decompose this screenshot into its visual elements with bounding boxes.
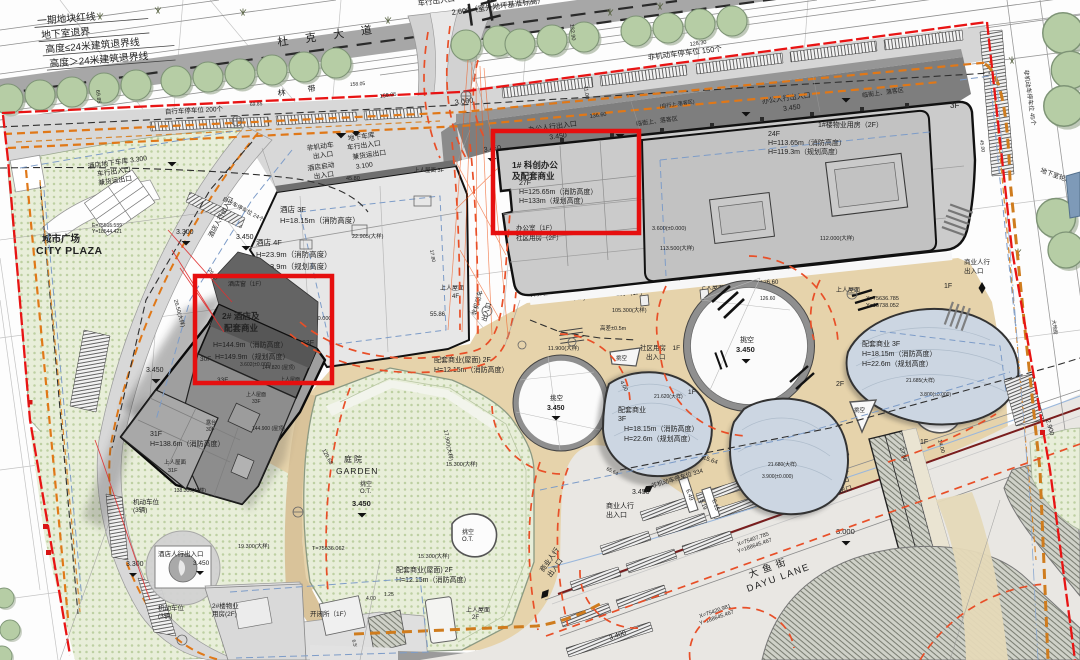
svg-text:酒店 4F: 酒店 4F	[256, 237, 282, 247]
svg-text:GARDEN: GARDEN	[336, 466, 378, 476]
svg-text:3.600(±0.000): 3.600(±0.000)	[652, 226, 686, 232]
svg-text:144.820 (屋顶): 144.820 (屋顶)	[262, 365, 295, 371]
svg-text:1F: 1F	[920, 439, 928, 446]
svg-text:4.00: 4.00	[366, 596, 376, 602]
svg-text:45.80: 45.80	[346, 176, 360, 182]
svg-text:H=18.15m（消防高度）: H=18.15m（消防高度）	[280, 215, 360, 225]
svg-text:30F: 30F	[200, 356, 211, 363]
svg-text:挑空: 挑空	[462, 528, 474, 536]
svg-text:酒店 3F: 酒店 3F	[280, 204, 306, 214]
svg-text:上人屋面: 上人屋面	[836, 286, 860, 294]
svg-text:H=119.3m（规划高度）: H=119.3m（规划高度）	[768, 147, 842, 156]
svg-text:2#楼物业: 2#楼物业	[212, 601, 239, 610]
svg-text:3.450: 3.450	[236, 234, 254, 241]
svg-text:(3辆): (3辆)	[158, 611, 172, 620]
svg-text:挑空: 挑空	[550, 393, 564, 402]
svg-text:O.T.: O.T.	[462, 537, 473, 543]
svg-text:31F: 31F	[150, 431, 162, 438]
svg-text:配套商业: 配套商业	[224, 323, 259, 333]
svg-text:1# 科创办公: 1# 科创办公	[512, 160, 558, 170]
svg-text:27F: 27F	[519, 180, 531, 187]
svg-text:H=144.9m（消防高度）: H=144.9m（消防高度）	[213, 340, 288, 349]
svg-text:Y=18544.421: Y=18544.421	[92, 229, 122, 235]
svg-text:3.450: 3.450	[736, 345, 755, 354]
svg-text:H=22.6m（规划高度）: H=22.6m（规划高度）	[624, 434, 695, 443]
svg-text:配套商业: 配套商业	[618, 405, 646, 414]
svg-text:H=23.9m（消防高度）: H=23.9m（消防高度）	[256, 249, 332, 259]
svg-text:上人屋面: 上人屋面	[164, 458, 187, 466]
svg-text:出入口: 出入口	[964, 266, 984, 275]
svg-text:1#楼物业用房（2F）: 1#楼物业用房（2F）	[818, 120, 883, 129]
svg-text:配套商业 3F: 配套商业 3F	[862, 339, 900, 348]
svg-text:3F: 3F	[618, 416, 626, 423]
svg-text:H=113.65m（消防高度）: H=113.65m（消防高度）	[768, 138, 846, 147]
svg-text:21.685(大样): 21.685(大样)	[906, 377, 935, 384]
svg-text:21.680(大样): 21.680(大样)	[768, 461, 797, 468]
svg-text:H=12.15m（消防高度）: H=12.15m（消防高度）	[396, 575, 471, 584]
svg-text:144.900 (屋顶): 144.900 (屋顶)	[252, 426, 285, 432]
svg-text:H=138.6m（消防高度）: H=138.6m（消防高度）	[150, 439, 225, 448]
svg-text:办公室（1F）: 办公室（1F）	[516, 223, 556, 232]
svg-text:用房(2F): 用房(2F)	[212, 609, 237, 618]
svg-text:3.450: 3.450	[547, 405, 565, 412]
svg-text:30F: 30F	[206, 427, 215, 433]
svg-text:H=18.15m（消防高度）: H=18.15m（消防高度）	[624, 424, 699, 433]
svg-text:69.85: 69.85	[250, 101, 263, 108]
svg-text:上人屋面: 上人屋面	[246, 391, 266, 398]
svg-text:19.300(大样): 19.300(大样)	[238, 542, 270, 550]
svg-text:商业人行: 商业人行	[606, 501, 634, 510]
svg-text:1F: 1F	[688, 389, 696, 396]
svg-text:15.300(大样): 15.300(大样)	[446, 460, 478, 468]
svg-text:2F: 2F	[836, 381, 844, 388]
svg-text:3.450: 3.450	[632, 489, 650, 496]
svg-text:2# 酒店及: 2# 酒店及	[222, 311, 260, 321]
svg-text:3.450: 3.450	[193, 560, 210, 567]
svg-text:138.300(43楼): 138.300(43楼)	[174, 487, 206, 494]
svg-text:机动车位: 机动车位	[158, 603, 185, 612]
svg-text:15.300(大样): 15.300(大样)	[418, 552, 450, 560]
svg-text:机动车位: 机动车位	[133, 497, 160, 506]
svg-text:挑空: 挑空	[854, 406, 866, 414]
svg-text:158.05: 158.05	[350, 81, 366, 88]
svg-text:55.86: 55.86	[430, 312, 446, 318]
svg-text:H=18.15m（消防高度）: H=18.15m（消防高度）	[862, 349, 937, 358]
svg-text:3F: 3F	[950, 101, 959, 110]
svg-text:11.900(大样): 11.900(大样)	[548, 344, 579, 352]
svg-text:高差±0.5m: 高差±0.5m	[600, 324, 627, 332]
svg-text:H=22.6m（规划高度）: H=22.6m（规划高度）	[862, 359, 933, 368]
svg-text:T=75636.062: T=75636.062	[312, 546, 345, 552]
svg-text:上人屋面 3F: 上人屋面 3F	[414, 166, 445, 174]
svg-text:H=125.65m（消防高度）: H=125.65m（消防高度）	[519, 187, 597, 196]
svg-text:126.60: 126.60	[760, 296, 776, 302]
svg-text:2F: 2F	[472, 615, 479, 621]
svg-text:3.900(±0.000): 3.900(±0.000)	[762, 474, 793, 480]
svg-text:庭院: 庭院	[344, 454, 364, 464]
svg-text:配套商业(屋面) 2F: 配套商业(屋面) 2F	[434, 355, 491, 364]
svg-text:31F: 31F	[168, 468, 178, 474]
svg-text:3.300: 3.300	[126, 561, 144, 568]
svg-text:105.300(大样): 105.300(大样)	[612, 306, 647, 314]
svg-text:配套商业(屋面) 2F: 配套商业(屋面) 2F	[396, 565, 453, 574]
svg-text:挑空: 挑空	[740, 335, 754, 344]
svg-text:(3辆): (3辆)	[133, 505, 147, 514]
svg-text:112.000(大样): 112.000(大样)	[820, 234, 854, 242]
svg-text:1F: 1F	[944, 283, 952, 290]
svg-text:挑空: 挑空	[360, 480, 372, 488]
svg-text:H=149.9m（规划高度）: H=149.9m（规划高度）	[215, 352, 290, 361]
svg-text:H=12.15m（消防高度）: H=12.15m（消防高度）	[434, 365, 509, 374]
svg-text:酒店窗（1F）: 酒店窗（1F）	[228, 280, 265, 288]
svg-text:33F: 33F	[252, 399, 261, 405]
svg-text:O.T.: O.T.	[360, 489, 371, 495]
svg-text:商业人行: 商业人行	[964, 257, 991, 266]
svg-text:开闭所（1F）: 开闭所（1F）	[310, 609, 350, 618]
svg-text:1.25: 1.25	[384, 592, 394, 598]
svg-text:24F: 24F	[768, 131, 780, 138]
svg-text:出入口: 出入口	[606, 510, 627, 519]
svg-text:挑空: 挑空	[616, 354, 628, 362]
svg-text:21.620(大样): 21.620(大样)	[654, 393, 683, 400]
svg-text:露台: 露台	[206, 419, 216, 426]
svg-text:上人屋面: 上人屋面	[466, 606, 490, 614]
svg-text:H=133m（规划高度）: H=133m（规划高度）	[519, 196, 588, 205]
svg-text:出入口: 出入口	[646, 352, 666, 361]
svg-text:22.905(大样): 22.905(大样)	[352, 232, 384, 240]
svg-text:酒店人行出入口: 酒店人行出入口	[158, 549, 204, 558]
svg-text:113.500(大样): 113.500(大样)	[660, 244, 694, 252]
svg-text:4F: 4F	[452, 294, 459, 300]
svg-text:3.450: 3.450	[352, 499, 371, 508]
